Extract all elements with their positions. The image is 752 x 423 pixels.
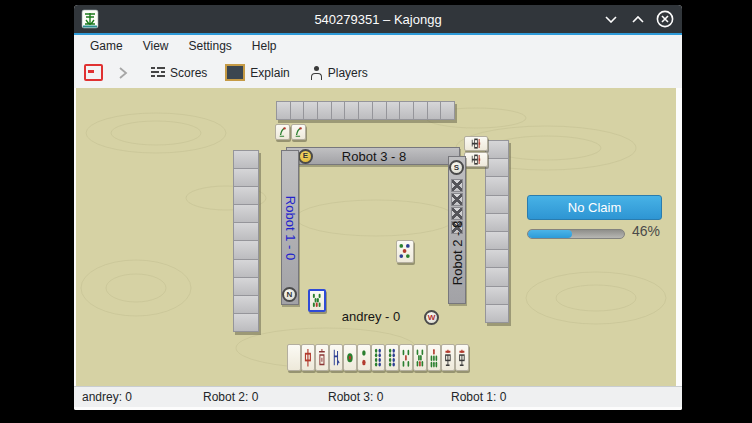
menu-view[interactable]: View <box>133 36 179 56</box>
wall-tile-back <box>359 101 373 120</box>
hand-tile-circle-8[interactable] <box>371 344 385 371</box>
players-button[interactable]: Players <box>310 66 368 80</box>
concealed-tile-back <box>451 193 463 206</box>
wall-top <box>276 101 455 120</box>
wall-tile-back <box>276 101 291 120</box>
wall-tile-back <box>441 101 455 120</box>
claim-timeout-progressbar <box>527 229 625 239</box>
robot2-wind-disc: S <box>449 160 464 175</box>
blackboard-icon <box>225 64 245 81</box>
wall-tile-back <box>485 177 509 195</box>
menubar: Game View Settings Help <box>74 35 682 57</box>
wall-tile-back <box>485 287 509 305</box>
minimize-button[interactable] <box>602 10 620 28</box>
no-claim-button[interactable]: No Claim <box>527 195 662 220</box>
wall-tile-back <box>485 159 509 177</box>
wall-tile-back <box>345 101 359 120</box>
chevron-right-icon[interactable] <box>117 66 129 80</box>
robot1-bar: Robot 1 - 0 N <box>281 150 299 305</box>
explain-button[interactable]: Explain <box>225 64 289 81</box>
hand-tile-blank[interactable] <box>287 344 301 371</box>
hand-tile-circle-8[interactable] <box>385 344 399 371</box>
wall-tile-back <box>485 196 509 214</box>
wall-tile-back <box>233 260 259 278</box>
chevron-down-icon <box>605 15 617 23</box>
status-robot2-score: Robot 2: 0 <box>203 390 258 404</box>
robot1-label: Robot 1 - 0 <box>283 195 298 259</box>
focused-discard-tile[interactable] <box>308 289 326 312</box>
wall-tile-back <box>373 101 387 120</box>
maximize-button[interactable] <box>629 10 647 28</box>
wall-tile-back <box>428 101 442 120</box>
status-robot1-score: Robot 1: 0 <box>451 390 506 404</box>
wall-tile-back <box>233 169 259 187</box>
robot2-exposed-tiles <box>464 136 488 167</box>
progress-percent-label: 46% <box>632 223 660 239</box>
close-icon <box>656 10 674 28</box>
wall-tile-back <box>233 296 259 314</box>
robot2-label: Robot 2 - 8 <box>450 221 465 285</box>
window-title: 540279351 – Kajongg <box>74 12 682 27</box>
scores-button[interactable]: Scores <box>151 66 207 80</box>
players-icon <box>310 66 323 80</box>
close-button[interactable] <box>656 10 674 28</box>
menu-help[interactable]: Help <box>242 36 287 56</box>
explain-label: Explain <box>250 66 289 80</box>
wall-tile-back <box>485 140 509 159</box>
wall-tile-back <box>233 241 259 259</box>
andrey-label: andrey - 0 <box>326 309 416 324</box>
wall-left <box>233 150 259 332</box>
hand-tile-circle-1[interactable] <box>343 344 357 371</box>
robot3-label: Robot 3 - 8 <box>313 149 435 164</box>
robot3-wind-disc: E <box>298 149 313 164</box>
hand-tile-wind-south[interactable] <box>315 344 329 371</box>
hand-tile-circle-2[interactable] <box>357 344 371 371</box>
exposed-tile-character-9 <box>464 152 488 167</box>
status-robot3-score: Robot 3: 0 <box>328 390 383 404</box>
hand-tile-bamboo-8[interactable] <box>413 344 427 371</box>
robot3-bar: E Robot 3 - 8 <box>286 147 460 165</box>
wall-tile-back <box>414 101 428 120</box>
window-bottom-border <box>74 407 682 410</box>
hand-tile-wind-north[interactable] <box>329 344 343 371</box>
wall-tile-back <box>233 314 259 332</box>
menu-game[interactable]: Game <box>80 36 133 56</box>
chevron-up-icon <box>632 15 644 23</box>
exposed-tile-bamboo-1 <box>291 124 306 140</box>
wall-tile-back <box>332 101 346 120</box>
menu-settings[interactable]: Settings <box>178 36 241 56</box>
status-andrey-score: andrey: 0 <box>82 390 132 404</box>
concealed-tile-back <box>451 207 463 220</box>
discard-tile[interactable] <box>396 240 414 263</box>
wall-tile-back <box>485 305 509 323</box>
wall-tile-back <box>485 268 509 286</box>
statusbar: andrey: 0 Robot 2: 0 Robot 3: 0 Robot 1:… <box>74 386 682 407</box>
robot3-exposed-tiles <box>275 124 306 140</box>
titlebar[interactable]: 540279351 – Kajongg <box>74 5 682 33</box>
exposed-tile-bamboo-1 <box>275 124 290 140</box>
wall-tile-back <box>400 101 414 120</box>
andrey-hand-tiles <box>287 344 469 371</box>
wall-tile-back <box>291 101 305 120</box>
wall-tile-back <box>233 223 259 241</box>
robot2-bar: S Robot 2 - 8 <box>448 156 466 304</box>
hand-tile-bamboo-7[interactable] <box>427 344 441 371</box>
wall-tile-back <box>387 101 401 120</box>
wall-tile-back <box>485 214 509 232</box>
abort-game-button[interactable] <box>84 64 103 81</box>
wall-tile-back <box>485 250 509 268</box>
hand-tile-character-9[interactable] <box>455 344 469 371</box>
wall-tile-back <box>485 232 509 250</box>
kajongg-window: 540279351 – Kajongg Game View Settings H… <box>74 5 682 410</box>
hand-tile-character-9[interactable] <box>441 344 455 371</box>
robot1-wind-disc: N <box>282 287 297 302</box>
wall-right <box>485 140 509 323</box>
game-board: E Robot 3 - 8 Robot 1 - 0 N S Robot 2 - … <box>76 88 676 386</box>
toolbar: Scores Explain Players <box>74 57 682 88</box>
wall-tile-back <box>304 101 318 120</box>
hand-tile-bamboo-5[interactable] <box>399 344 413 371</box>
wall-tile-back <box>233 150 259 169</box>
wall-tile-back <box>233 187 259 205</box>
wall-tile-back <box>233 278 259 296</box>
concealed-tile-back <box>451 179 463 192</box>
wall-tile-back <box>233 205 259 223</box>
wall-tile-back <box>318 101 332 120</box>
andrey-wind-disc: W <box>424 310 439 325</box>
players-label: Players <box>328 66 368 80</box>
abort-game-icon <box>84 64 103 81</box>
scores-icon <box>151 66 165 79</box>
exposed-tile-character-9 <box>464 136 488 151</box>
hand-tile-dragon-red[interactable] <box>301 344 315 371</box>
progress-fill <box>528 230 572 238</box>
scores-label: Scores <box>170 66 207 80</box>
